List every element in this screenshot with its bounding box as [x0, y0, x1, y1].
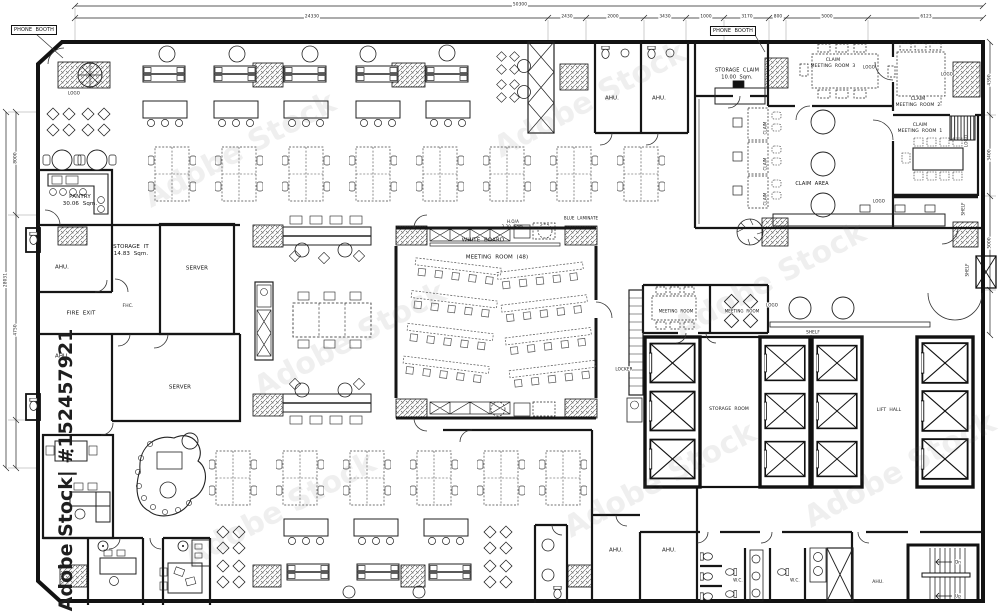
stairs: [908, 545, 978, 601]
logo-label: LOGO: [68, 90, 80, 95]
shelf-label: SHELF: [964, 263, 969, 276]
wc-label: W.C.: [733, 577, 743, 582]
blue-laminate-label: BLUE LAMINATE: [564, 215, 598, 220]
lift-car: [764, 442, 805, 477]
lift-car: [816, 346, 857, 381]
dim-top: 1000: [699, 15, 712, 20]
claim-meeting-room-2-label: CLAIMMEETING ROOM 2: [896, 97, 941, 109]
hoa-label: H.O/A2.20 Sqm.: [502, 219, 525, 229]
lift-car: [764, 394, 805, 429]
lift-car: [816, 442, 857, 477]
claim-area-label: CLAIM AREA: [795, 181, 828, 188]
shelf-label: SHELF: [960, 202, 965, 215]
wc-label: W.C.: [790, 577, 800, 582]
dim-left: 8000: [14, 151, 19, 164]
dim-left: 4750: [14, 323, 19, 336]
floorplan-graphics: [0, 0, 1000, 613]
logo-label: LOGO: [863, 64, 875, 69]
stairs-up-label: Up: [955, 593, 961, 598]
dim-top: 5000: [820, 15, 833, 20]
dim-top: 3170: [740, 15, 753, 20]
lift-hall-label: LIFT HALL: [877, 408, 901, 414]
lift-car: [649, 344, 695, 383]
stairs-dn-label: Dn: [955, 559, 961, 564]
claim-meeting-room-3-label: CLAIMMEETING ROOM 3: [811, 58, 856, 70]
dim-top: 3430: [658, 15, 671, 20]
logo-label: LOGO: [963, 135, 968, 147]
logo-label: LOGO: [941, 71, 953, 76]
floorplan-image: PHONE BOOTH PHONE BOOTH PANTRY30.06 Sqm.…: [0, 0, 1000, 613]
claim-counter-label: CLAIM: [762, 158, 767, 171]
ahu-label: AHU.: [662, 547, 676, 554]
pantry-label: PANTRY30.06 Sqm.: [63, 194, 97, 208]
ahu-label: AHU.: [55, 264, 69, 271]
lift-car: [764, 346, 805, 381]
claim-meeting-room-1-label: CLAIMMEETING ROOM 1: [898, 123, 943, 135]
dim-right: 5000: [988, 236, 993, 249]
locker-label: LOCKER: [615, 366, 632, 371]
ahu-label: AHU.: [652, 95, 666, 102]
dim-top: 2430: [560, 15, 573, 20]
dim-top: 24330: [304, 15, 320, 20]
lift-car: [649, 392, 695, 431]
claim-counter-label: CLAIM: [762, 193, 767, 206]
shelf-label: SHELF: [806, 329, 820, 334]
lift-car: [921, 343, 968, 383]
meeting-room-48: [402, 223, 597, 416]
phone-booth-label: PHONE BOOTH: [710, 26, 756, 36]
watermark-id: Adobe Stock| #152457921: [55, 329, 77, 612]
phone-booth-label: PHONE BOOTH: [11, 25, 57, 35]
lift-car: [816, 394, 857, 429]
logo-label: LOGO: [766, 302, 778, 307]
dim-top: 2000: [606, 15, 619, 20]
fhc-label: FHC.: [123, 304, 134, 310]
storage-room-label: STORAGE ROOM: [709, 407, 749, 413]
server-label: SERVER: [169, 384, 191, 391]
ahu-label: AHU.: [609, 547, 623, 554]
ahu-label: AHU.: [872, 580, 884, 586]
fire-exit-label: FIRE EXIT: [67, 310, 96, 317]
claim-counter-label: CLAIM: [762, 122, 767, 135]
dim-right: 4390: [988, 73, 993, 86]
dim-right: 3400: [988, 148, 993, 161]
dim-top-overall: 50300: [512, 3, 528, 8]
storage-it-label: STORAGE IT14.83 Sqm.: [113, 244, 149, 258]
meeting-room-48-label: MEETING ROOM (48): [466, 254, 528, 261]
dim-left: 28031: [4, 272, 9, 288]
dim-top: 800: [773, 15, 784, 20]
white-board-label: WHITE BOARD: [462, 237, 504, 244]
dim-top: 6123: [919, 15, 932, 20]
server-label: SERVER: [186, 265, 208, 272]
storage-claim-label: STORAGE CLAIM10.00 Sqm.: [715, 68, 759, 81]
logo-label: LOGO: [873, 198, 885, 203]
